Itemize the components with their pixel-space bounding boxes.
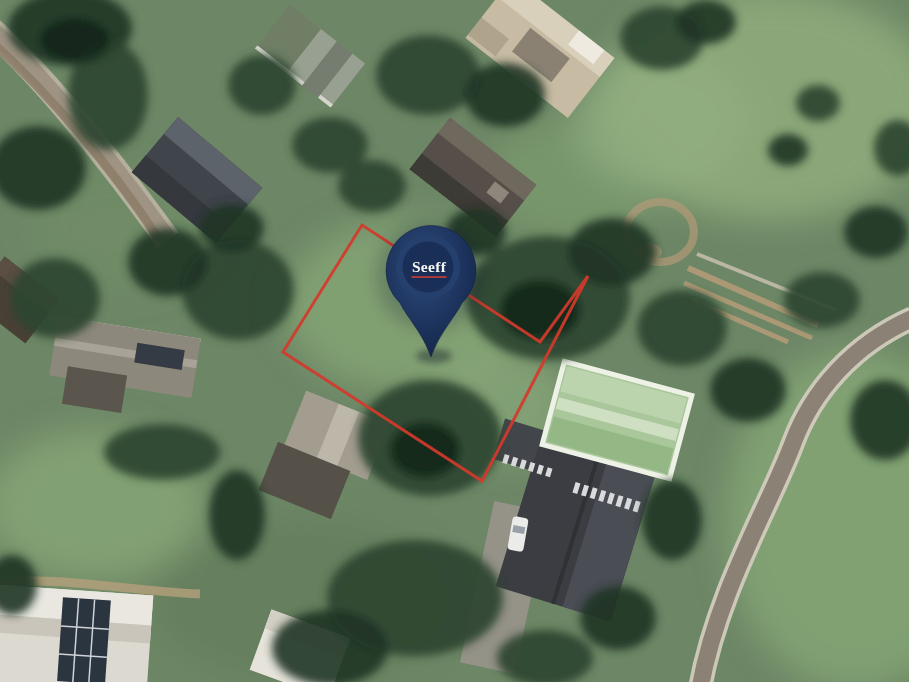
- tree: [796, 85, 840, 121]
- tree: [10, 258, 100, 338]
- pin-brand-underline: [412, 276, 447, 278]
- tree: [710, 358, 786, 422]
- solar-array: [57, 597, 111, 682]
- tree: [200, 204, 264, 252]
- tree: [104, 424, 220, 480]
- tree: [128, 228, 208, 296]
- tree: [209, 470, 265, 560]
- satellite-map[interactable]: Seeff: [0, 0, 909, 682]
- tree: [228, 55, 296, 115]
- tree: [642, 480, 702, 560]
- tree: [768, 134, 808, 166]
- tree: [376, 35, 480, 115]
- tree: [40, 18, 110, 62]
- pin-brand-label: Seeff: [412, 258, 447, 275]
- tree: [500, 280, 580, 340]
- tree: [784, 272, 860, 328]
- tree: [580, 586, 656, 650]
- tree: [676, 0, 736, 44]
- tree: [390, 422, 460, 478]
- tree: [568, 218, 656, 286]
- tree: [844, 206, 908, 258]
- tree: [338, 160, 406, 212]
- aerial-scenery: [0, 0, 909, 682]
- tree: [465, 63, 545, 127]
- tree: [637, 290, 727, 366]
- pin-ground-shadow: [416, 349, 452, 363]
